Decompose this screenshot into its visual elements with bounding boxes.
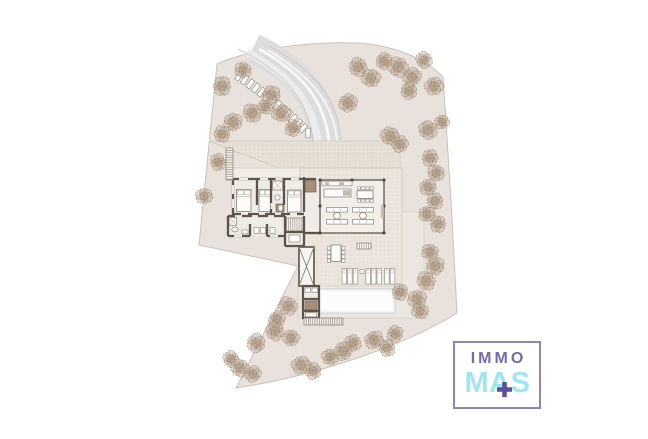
- tree-core: [297, 361, 306, 370]
- appliance: [254, 228, 259, 234]
- tree-core: [289, 124, 297, 132]
- kitchen-hob: [339, 182, 344, 185]
- outdoor-chair: [342, 259, 345, 262]
- tree-core: [430, 82, 439, 91]
- tree-core: [349, 339, 357, 347]
- dining-chair: [370, 187, 373, 190]
- tree-core: [424, 126, 433, 135]
- column: [383, 179, 386, 182]
- sink-counter: [242, 230, 248, 234]
- window: [270, 235, 278, 237]
- tree-core: [396, 288, 404, 296]
- tree-core: [239, 66, 247, 74]
- bed-pillow: [265, 191, 270, 195]
- tree-core: [391, 330, 399, 338]
- outdoor-chair: [327, 259, 330, 262]
- tree-core: [422, 277, 431, 286]
- outdoor-chair: [327, 247, 330, 250]
- sink: [275, 195, 280, 200]
- side-table: [360, 270, 364, 274]
- tree-core: [277, 109, 286, 118]
- outdoor-chair: [327, 251, 330, 254]
- tree-core: [380, 57, 388, 65]
- window: [276, 178, 283, 180]
- tree-core: [229, 118, 238, 127]
- entry-closet: [305, 180, 316, 192]
- tree-core: [249, 370, 257, 378]
- tree-core: [326, 353, 334, 361]
- tree: [214, 126, 230, 143]
- tree-core: [424, 183, 432, 191]
- site-plan-image: IMMO MAS: [0, 0, 648, 439]
- dining-chair: [370, 199, 373, 202]
- window: [232, 199, 234, 208]
- staircase-lines: [289, 218, 302, 231]
- outdoor-chair: [342, 251, 345, 254]
- tree-core: [431, 262, 440, 271]
- tree-core: [386, 132, 395, 141]
- sofa: [327, 208, 348, 213]
- sofa: [353, 208, 374, 213]
- tree-core: [218, 82, 227, 91]
- window: [291, 178, 299, 180]
- tree-core: [200, 192, 208, 200]
- tree-core: [426, 154, 434, 162]
- tree-core: [252, 339, 261, 348]
- outdoor-table: [331, 245, 341, 262]
- tree-core: [214, 158, 222, 166]
- tree-core: [271, 327, 280, 336]
- tree-core: [393, 62, 403, 72]
- island-hob: [343, 190, 350, 195]
- tree-core: [396, 140, 404, 148]
- tree-core: [439, 119, 446, 126]
- tree-core: [218, 130, 226, 138]
- garden-steps: [306, 128, 310, 138]
- bed-pillow: [245, 191, 251, 195]
- toilet: [232, 227, 238, 232]
- poolhouse-fixture: [305, 288, 311, 293]
- bed-pillow: [238, 191, 244, 195]
- bed-pillow: [289, 191, 295, 195]
- outdoor-chair: [327, 255, 330, 258]
- tree-core: [267, 91, 276, 100]
- logo-word-immo: IMMO: [455, 350, 539, 368]
- logo-immomas: IMMO MAS: [453, 341, 541, 409]
- tree-core: [339, 347, 348, 356]
- window: [239, 178, 248, 180]
- tree-core: [383, 344, 391, 352]
- tree: [271, 105, 291, 122]
- tree: [379, 340, 394, 357]
- dining-chair: [358, 187, 361, 190]
- tree-core: [344, 99, 353, 108]
- tree-core: [420, 56, 428, 64]
- bed-pillow: [260, 191, 265, 195]
- tree-core: [432, 169, 440, 177]
- storage-unit: [289, 235, 300, 242]
- tree-core: [262, 104, 269, 111]
- tree-core: [370, 336, 379, 345]
- poolhouse-sauna: [305, 301, 317, 310]
- window: [234, 235, 242, 237]
- column: [319, 205, 322, 208]
- toilet: [278, 205, 283, 211]
- tree-core: [287, 334, 295, 342]
- tree-core: [354, 63, 363, 72]
- bed-pillow: [295, 191, 301, 195]
- tree-core: [423, 210, 431, 218]
- plan-root: [195, 43, 457, 388]
- plus-icon: [497, 382, 512, 397]
- tree-core: [405, 87, 413, 95]
- outdoor-chair: [342, 247, 345, 250]
- coffee-table: [334, 212, 341, 219]
- tree-core: [426, 248, 434, 256]
- tree-core: [416, 307, 424, 315]
- tree: [392, 283, 408, 300]
- column: [319, 232, 322, 235]
- floor-plan-svg: [0, 0, 648, 439]
- tree-core: [434, 220, 442, 228]
- outdoor-chair: [342, 255, 345, 258]
- coffee-table: [360, 212, 367, 219]
- column: [383, 232, 386, 235]
- dining-chair: [366, 199, 369, 202]
- sofa: [327, 220, 348, 225]
- tree: [195, 188, 212, 203]
- tree-core: [248, 109, 257, 118]
- tree-core: [309, 367, 317, 375]
- living-room-floor: [320, 180, 384, 233]
- window: [232, 185, 234, 194]
- tree-core: [408, 73, 417, 82]
- tree-core: [284, 302, 293, 311]
- appliance: [261, 228, 266, 234]
- window: [260, 178, 268, 180]
- dining-table: [357, 191, 373, 199]
- tree: [213, 77, 230, 96]
- poolhouse-fixture: [306, 313, 317, 317]
- dining-chair: [362, 187, 365, 190]
- sofa: [353, 220, 374, 225]
- tree-core: [413, 295, 422, 304]
- poolhouse-fixture: [312, 288, 318, 293]
- appliance: [270, 228, 275, 234]
- tree-core: [431, 197, 439, 205]
- tree-core: [367, 74, 376, 83]
- dining-chair: [366, 187, 369, 190]
- dining-chair: [358, 199, 361, 202]
- pool: [318, 289, 395, 313]
- column: [319, 179, 322, 182]
- tree: [430, 216, 445, 233]
- dining-chair: [362, 199, 365, 202]
- tree: [223, 350, 239, 368]
- tree-core: [227, 355, 235, 363]
- kitchen-sink: [325, 182, 329, 185]
- wall-unit: [381, 205, 384, 218]
